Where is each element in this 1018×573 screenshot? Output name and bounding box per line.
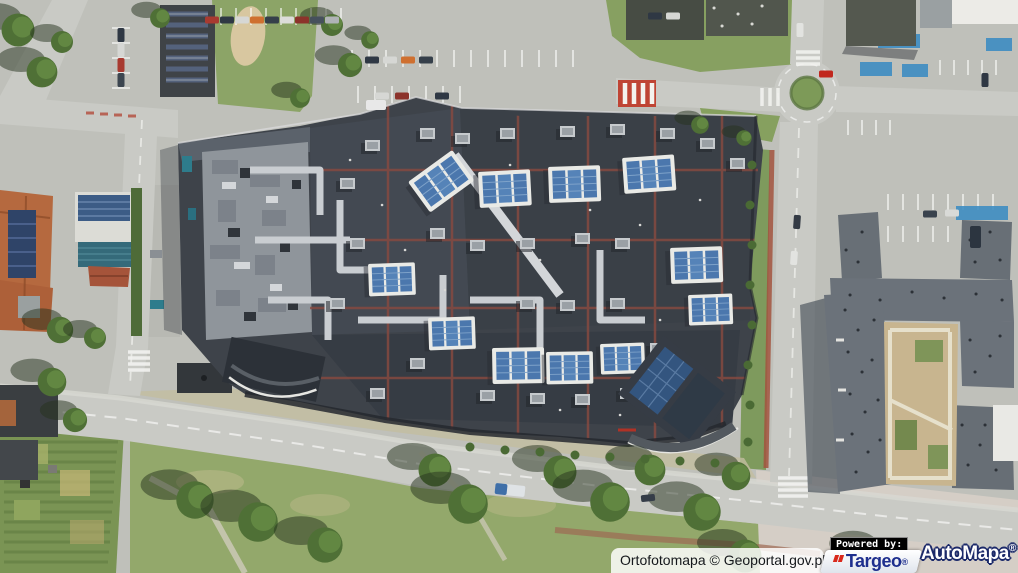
red-white-crosswalk bbox=[618, 80, 656, 107]
targeo-logo-text: Targeo bbox=[846, 551, 902, 572]
red-car bbox=[819, 71, 833, 78]
orthophoto-canvas[interactable] bbox=[0, 0, 1018, 573]
automapa-logo[interactable]: AutoMapa® bbox=[921, 543, 1016, 565]
targeo-quote-icon bbox=[834, 549, 844, 567]
automapa-registered-mark: ® bbox=[1009, 543, 1016, 554]
automapa-logo-text: AutoMapa bbox=[921, 543, 1009, 564]
courtyard-garden bbox=[884, 322, 958, 486]
map-viewport: Ortofotomapa © Geoportal.gov.pl Powered … bbox=[0, 0, 1018, 573]
roundabout bbox=[774, 60, 840, 126]
targeo-registered-mark: ® bbox=[902, 557, 909, 567]
targeo-logo[interactable]: Targeo ® bbox=[820, 550, 922, 573]
warehouse-solar bbox=[75, 192, 133, 267]
map-attribution: Ortofotomapa © Geoportal.gov.pl bbox=[611, 548, 824, 573]
hedge-row bbox=[131, 188, 142, 336]
